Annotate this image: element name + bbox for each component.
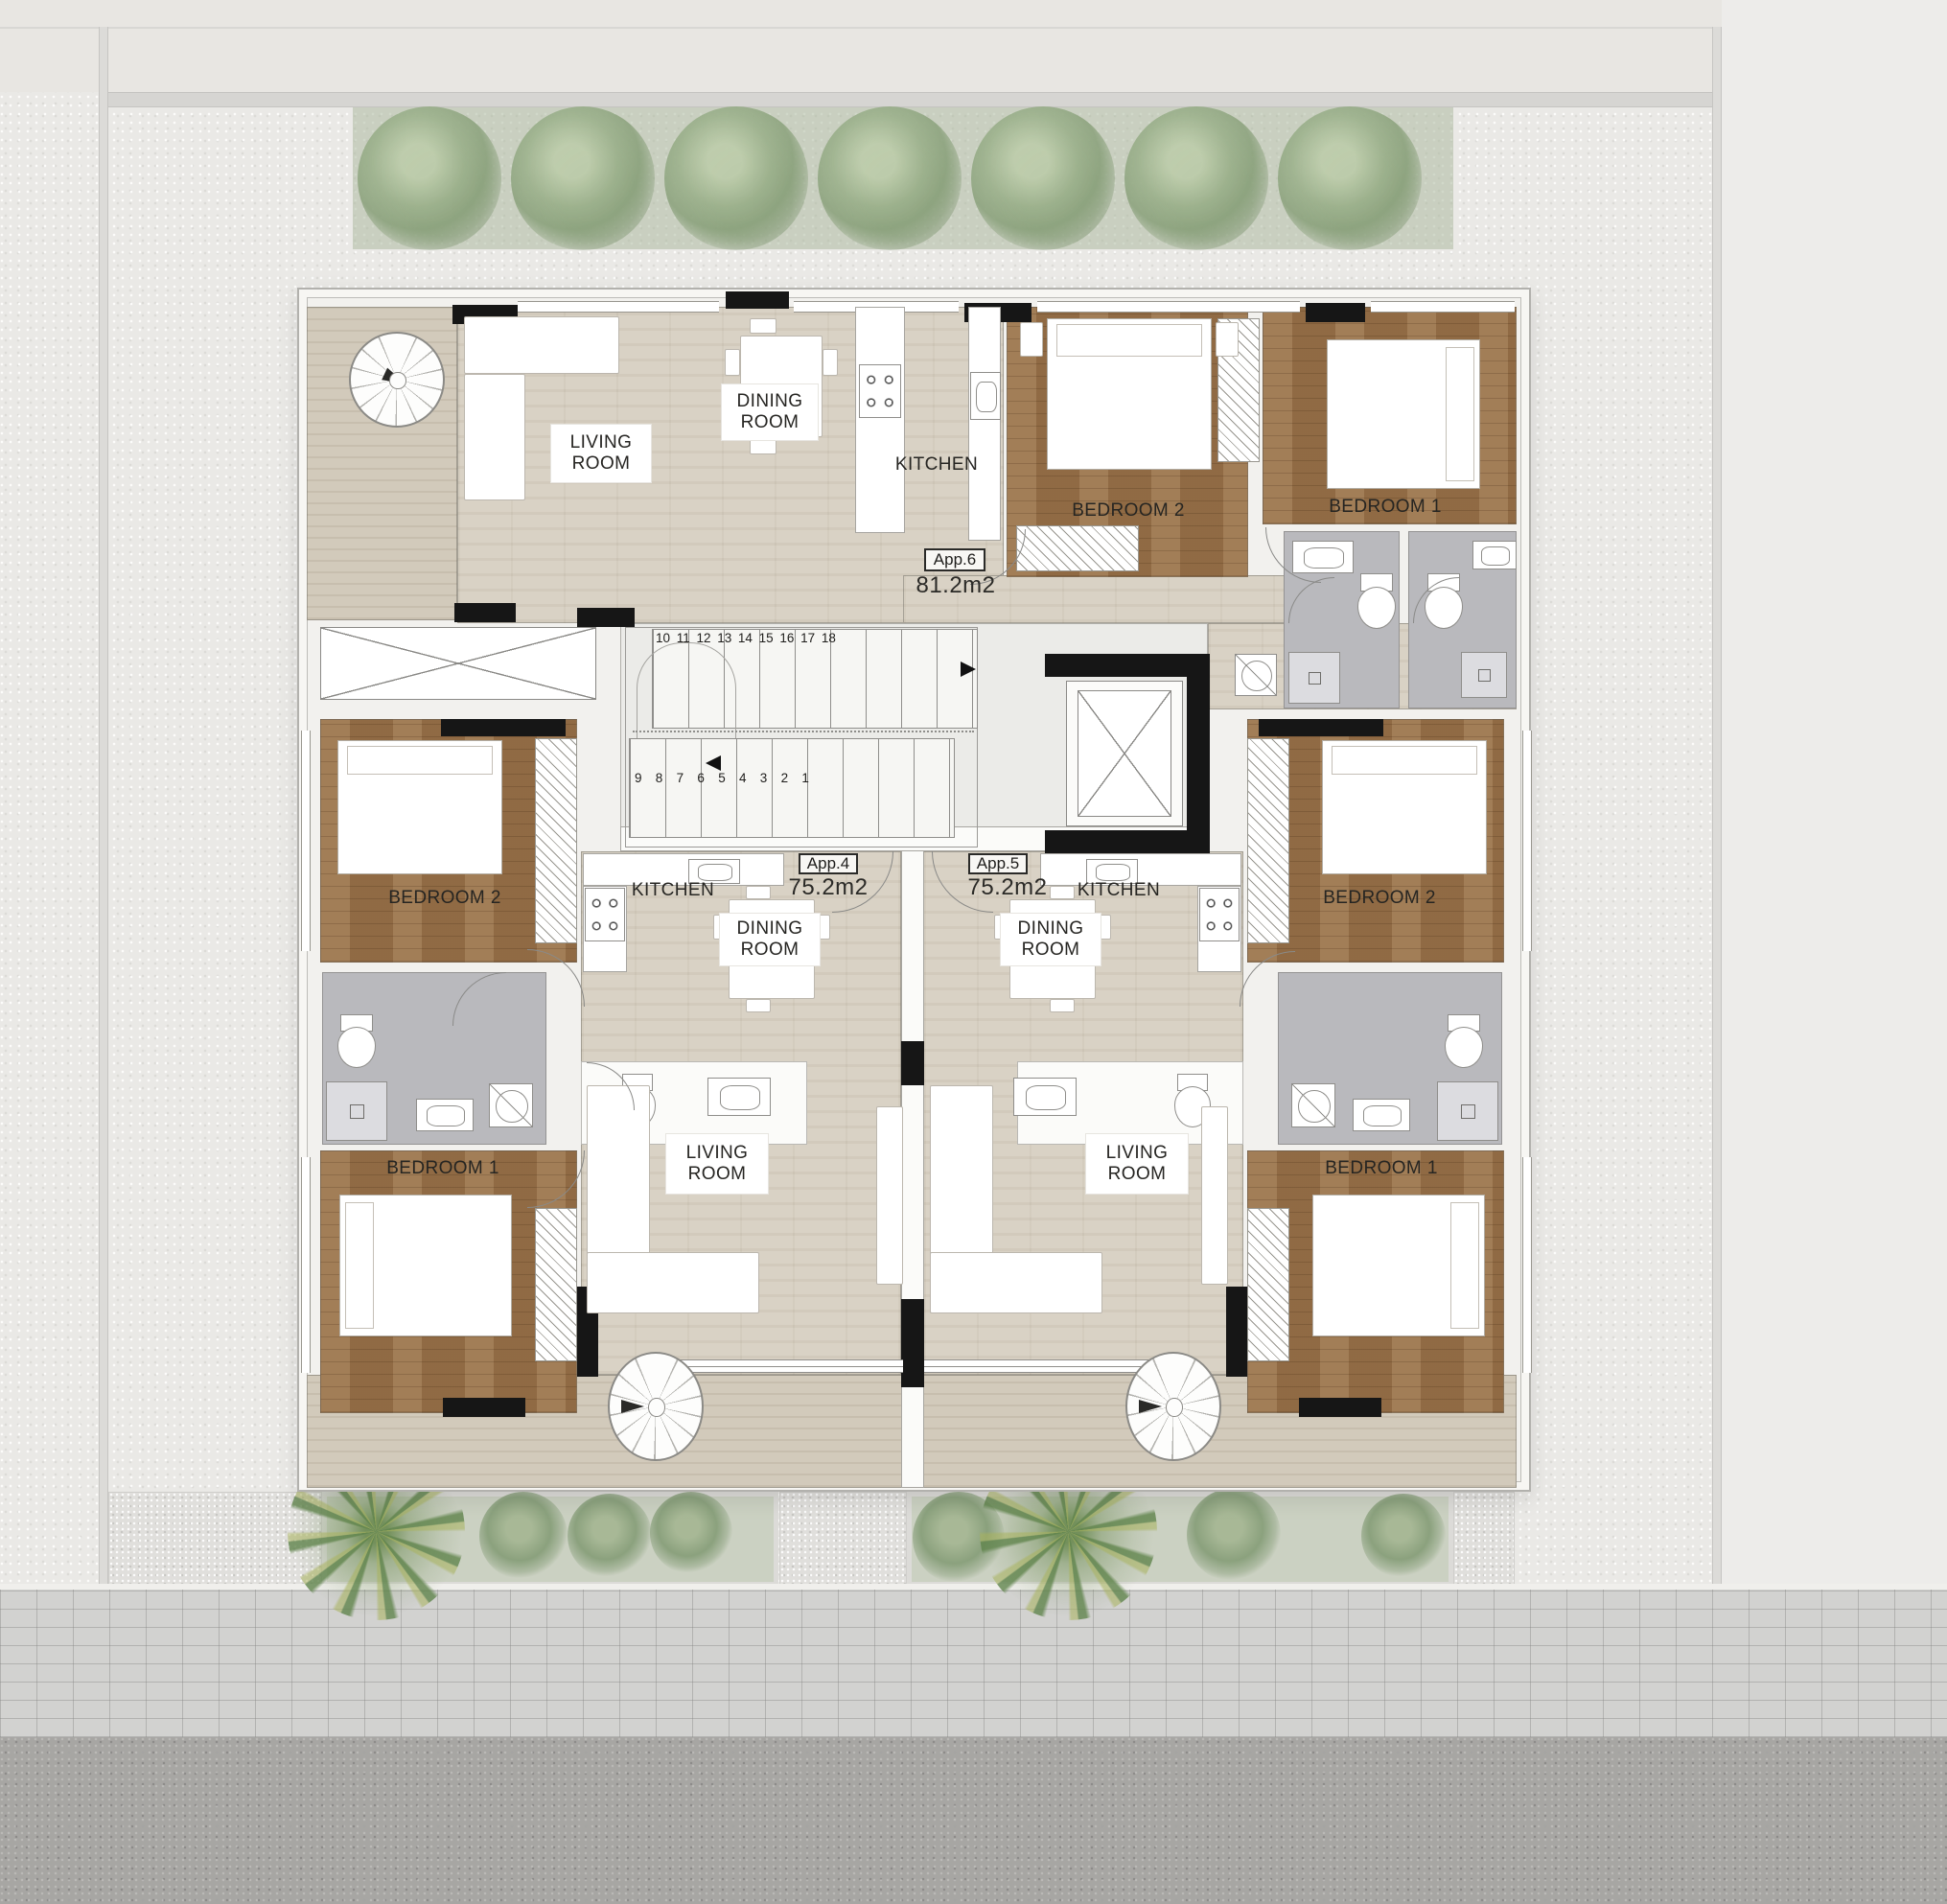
right-parcel [1722, 0, 1947, 1590]
app5-area-label: 75.2m2 [955, 876, 1060, 899]
step-number: 16 [779, 631, 794, 648]
chair [746, 999, 771, 1012]
step-number: 4 [739, 771, 747, 788]
chair [1050, 999, 1075, 1012]
tree-icon [971, 106, 1115, 250]
washing-machine-icon [1291, 1083, 1335, 1127]
chair [746, 886, 771, 899]
step-number: 14 [738, 631, 753, 648]
step-number: 8 [656, 771, 663, 788]
spiral-staircase-icon [608, 1352, 704, 1461]
window [301, 731, 311, 951]
app5-bedroom2-label: BEDROOM 2 [1312, 886, 1447, 911]
tv-cabinet [876, 1106, 903, 1285]
sink-icon [416, 1099, 474, 1131]
elevator-wall [1045, 654, 1210, 677]
step-number: 18 [822, 631, 836, 648]
spiral-arrow-icon [382, 368, 408, 390]
tree-icon [1124, 106, 1268, 250]
toilet-icon [1443, 1014, 1485, 1068]
tree-icon [358, 106, 501, 250]
stair-step-numbers-lower: 987654321 [635, 771, 809, 788]
wall-segment [1226, 1287, 1247, 1377]
kitchen-island [855, 307, 905, 533]
app4-id-badge: App.4 [799, 853, 858, 874]
wall-segment [441, 719, 566, 736]
window-bench [1201, 1106, 1228, 1285]
front-walkway [1453, 1492, 1515, 1587]
app6-living-room-label: LIVING ROOM [550, 424, 652, 483]
sofa [930, 1252, 1102, 1313]
shower-icon [1288, 652, 1340, 704]
left-boundary-line [99, 27, 108, 1591]
app4-living-room-label: LIVING ROOM [665, 1133, 769, 1195]
architectural-floor-plan: 101112131415161718 987654321 [0, 0, 1947, 1904]
bush-icon [568, 1494, 652, 1578]
app6-id-badge: App.6 [924, 548, 985, 571]
right-boundary-line [1712, 27, 1722, 1591]
wardrobe-icon [1247, 738, 1289, 943]
stove-icon [859, 364, 901, 418]
stove-icon [1199, 888, 1240, 941]
sliding-door [673, 1359, 903, 1373]
staircase-icon [629, 738, 955, 838]
bed-pillows [1332, 746, 1477, 775]
window [1037, 301, 1300, 313]
app5-bedroom1-label: BEDROOM 1 [1314, 1156, 1449, 1181]
window [1522, 1157, 1532, 1373]
party-wall [901, 826, 924, 1488]
app5-id-badge: App.5 [968, 853, 1028, 874]
spiral-arrow-icon [621, 1400, 644, 1413]
tree-icon [818, 106, 962, 250]
wardrobe-icon [535, 738, 577, 943]
app4-dining-room-label: DINING ROOM [719, 913, 821, 966]
wall-segment [577, 608, 635, 627]
tree-icon [1278, 106, 1422, 250]
bed-pillows [1450, 1202, 1479, 1329]
spiral-arrow-icon [1139, 1400, 1162, 1413]
shower-icon [1437, 1081, 1498, 1141]
nightstand [1020, 322, 1043, 357]
sink-icon [970, 372, 1001, 420]
top-boundary-line [0, 27, 1947, 29]
elevator-wall [1045, 830, 1210, 853]
void-skylight [320, 627, 596, 700]
app4-area-label: 75.2m2 [776, 876, 881, 899]
sink-icon [1013, 1078, 1077, 1116]
step-number: 2 [781, 771, 789, 788]
step-number: 3 [760, 771, 768, 788]
window [1371, 301, 1515, 313]
bed-pillows [345, 1202, 374, 1329]
app4-kitchen-label: KITCHEN [606, 878, 740, 903]
chair [823, 349, 838, 376]
step-number: 17 [800, 631, 815, 648]
bush-icon [1361, 1494, 1446, 1578]
window [1522, 731, 1532, 951]
stair-step-numbers-upper: 101112131415161718 [656, 631, 836, 648]
wardrobe-icon [1016, 525, 1139, 571]
app6-dining-room-label: DINING ROOM [721, 383, 819, 441]
wall-segment [443, 1398, 525, 1417]
nightstand [1216, 322, 1239, 357]
elevator-wall [1187, 654, 1210, 853]
app4-bedroom2-label: BEDROOM 2 [378, 886, 512, 911]
app6-bedroom2-label: BEDROOM 2 [1056, 499, 1200, 523]
bush-icon [479, 1492, 568, 1580]
asphalt-road [0, 1737, 1947, 1904]
window [301, 1157, 311, 1373]
wardrobe-icon [535, 1208, 577, 1361]
stair-direction-arrow [706, 755, 721, 771]
sidewalk-paving [0, 1590, 1947, 1737]
wall-segment [726, 291, 789, 309]
washing-machine-icon [1235, 654, 1277, 696]
elevator-icon [1078, 690, 1171, 817]
wall-segment [1306, 303, 1365, 322]
app5-dining-room-label: DINING ROOM [1000, 913, 1101, 966]
sink-icon [707, 1078, 771, 1116]
washing-machine-icon [489, 1083, 533, 1127]
app6-area-label: 81.2m2 [903, 573, 1008, 598]
stair-cut-line [633, 731, 974, 732]
tree-icon [664, 106, 808, 250]
step-number: 15 [759, 631, 774, 648]
rear-path [104, 92, 1722, 107]
spiral-staircase-icon [349, 332, 445, 428]
bush-icon [650, 1492, 732, 1574]
step-number: 10 [656, 631, 670, 648]
step-number: 9 [635, 771, 642, 788]
app6-bedroom1-label: BEDROOM 1 [1309, 495, 1462, 520]
sink-icon [1353, 1099, 1410, 1131]
kitchen-counter [968, 307, 1001, 541]
bed-pillows [1056, 324, 1202, 357]
shower-icon [1461, 652, 1507, 698]
toilet-icon [1356, 573, 1398, 629]
step-number: 6 [697, 771, 705, 788]
wall-segment [1299, 1398, 1381, 1417]
step-number: 7 [677, 771, 684, 788]
wall-segment [901, 1299, 924, 1387]
app6-kitchen-label: KITCHEN [869, 453, 1004, 477]
entry-walkway [779, 1492, 907, 1587]
building-footprint: 101112131415161718 987654321 [297, 288, 1531, 1492]
sofa [464, 316, 619, 374]
step-number: 11 [677, 631, 690, 648]
chair [725, 349, 740, 376]
step-number: 13 [717, 631, 731, 648]
bush-icon [1187, 1488, 1281, 1582]
app5-living-room-label: LIVING ROOM [1085, 1133, 1189, 1195]
sink-icon [1472, 541, 1517, 569]
chair [750, 439, 776, 454]
spiral-staircase-icon [1125, 1352, 1221, 1461]
chair [750, 318, 776, 334]
tree-icon [511, 106, 655, 250]
sliding-door [924, 1359, 1154, 1373]
wall-segment [901, 1041, 924, 1085]
shower-icon [326, 1081, 387, 1141]
step-number: 12 [696, 631, 710, 648]
bed-pillows [347, 746, 493, 775]
step-number: 1 [801, 771, 809, 788]
sofa [464, 374, 525, 500]
wall-segment [1259, 719, 1383, 736]
upper-ground-band [0, 0, 1947, 92]
sofa [587, 1252, 759, 1313]
stair-direction-arrow [961, 662, 976, 677]
wardrobe-icon [1247, 1208, 1289, 1361]
window [518, 301, 719, 313]
bed-pillows [1446, 347, 1474, 481]
wall-segment [454, 603, 516, 622]
app5-kitchen-label: KITCHEN [1052, 878, 1186, 903]
app4-bedroom1-label: BEDROOM 1 [376, 1156, 510, 1181]
toilet-icon [336, 1014, 378, 1068]
step-number: 5 [718, 771, 726, 788]
